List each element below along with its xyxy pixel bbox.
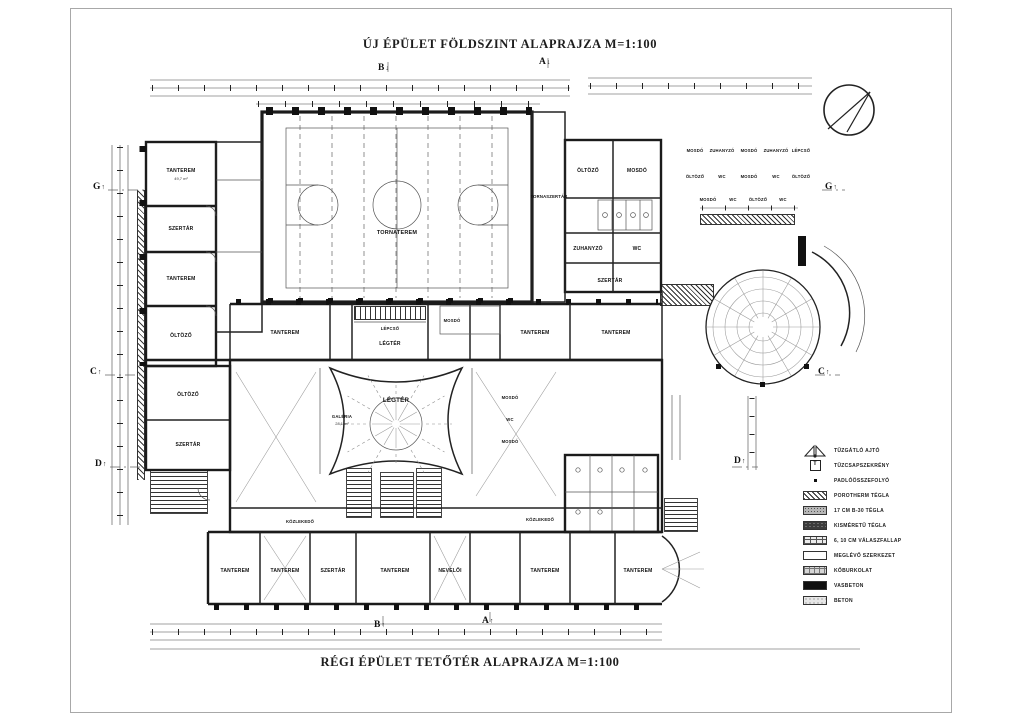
room-label: WC [633, 246, 642, 252]
room-area: 28,1 m² [335, 421, 349, 426]
room-label: TANTEREM [270, 330, 299, 336]
room-label: GALÉRIA [332, 414, 352, 419]
legend-item-stone: KŐBURKOLAT [802, 563, 952, 578]
room-label: TANTEREM [270, 568, 299, 574]
fire-hydrant-icon: T [810, 460, 821, 471]
section-marker-b-top: B↓ [378, 63, 389, 73]
east-block [532, 112, 661, 302]
section-marker-a-top: A↓ [539, 57, 550, 67]
section-marker-d-right: D↑ [734, 456, 745, 466]
room-label: WC [718, 174, 725, 179]
porotherm-swatch [803, 491, 827, 500]
room-label: LÉGTÉR [379, 339, 401, 347]
section-marker-c-left: C↑ [90, 367, 101, 377]
room-label: SZERTÁR [320, 567, 345, 574]
room-label: MOSDÓ [627, 166, 647, 174]
legend-item-b30: 17 CM B-30 TÉGLA [802, 503, 952, 518]
section-marker-g-left: G↑ [93, 182, 105, 192]
floor-drain-icon [814, 479, 817, 482]
room-label: ÖLTÖZŐ [177, 391, 199, 398]
west-wing [143, 142, 262, 470]
legend-item-partition: 6, 10 CM VÁLASZFALLAP [802, 533, 952, 548]
section-marker-b-bottom: B↑ [374, 620, 385, 630]
room-label: MOSDÓ [687, 148, 704, 153]
room-label: WC [779, 197, 786, 202]
round-terrace [706, 236, 865, 387]
room-label: SZERTÁR [168, 225, 193, 232]
legend-item-concrete: BETON [802, 593, 952, 608]
room-label: LÉGTÉR [383, 396, 410, 404]
legend-item-fire-door: TŰZGÁTLÓ AJTÓ [802, 443, 952, 458]
dimension-strip-left [112, 145, 128, 525]
room-label: MOSDÓ [700, 197, 717, 202]
room-label: TANTEREM [520, 330, 549, 336]
dimension-strip-bottom [150, 624, 860, 649]
room-label: LÉPCSŐ [381, 326, 400, 331]
room-label: ÖLTÖZŐ [577, 167, 599, 174]
room-area: 49,7 m² [174, 176, 188, 181]
drawing-sheet: ÚJ ÉPÜLET FÖLDSZINT ALAPRAJZA M=1:100 RÉ… [0, 0, 1024, 724]
room-label: TANTEREM [380, 568, 409, 574]
section-marker-a-bottom: A↑ [482, 616, 493, 626]
partition-swatch [803, 536, 827, 545]
legend-item-small-brick: KISMÉRETŰ TÉGLA [802, 518, 952, 533]
legend: TŰZGÁTLÓ AJTÓ T TŰZCSAPSZEKRÉNY PADLÓÖSS… [802, 443, 952, 608]
small-brick-swatch [803, 521, 827, 530]
room-label: NEVELŐI [438, 567, 462, 574]
legend-item-rc: VASBETON [802, 578, 952, 593]
atrium [230, 360, 662, 532]
floor-plan-drawing: .thin{stroke:#555;stroke-width:.7;fill:n… [0, 0, 1024, 724]
room-label: KÖZLEKEDŐ [286, 519, 315, 524]
room-label: MOSDÓ [502, 395, 519, 400]
room-label: LÉPCSŐ [792, 148, 811, 153]
room-label: ZUHANYZÓ [764, 148, 789, 153]
room-label: ZUHANYZÓ [710, 148, 735, 153]
room-label: ÖLTÖZŐ [749, 197, 768, 202]
basketball-court-markings [286, 128, 508, 288]
room-label: TANTEREM [530, 568, 559, 574]
room-label: ÖLTÖZŐ [792, 174, 811, 179]
room-label: MOSDÓ [444, 318, 461, 323]
room-label: TANTEREM [623, 568, 652, 574]
room-label: ÖLTÖZŐ [686, 174, 705, 179]
room-label: MOSDÓ [502, 439, 519, 444]
concrete-swatch [803, 596, 827, 605]
dimension-strip-top-right [588, 78, 812, 208]
room-label: MOSDÓ [741, 174, 758, 179]
legend-item-porotherm: POROTHERM TÉGLA [802, 488, 952, 503]
legend-item-floor-drain: PADLÓÖSSZEFOLYÓ [802, 473, 952, 488]
room-label: TANTEREM [601, 330, 630, 336]
fire-door-icon [802, 444, 828, 458]
gym-hall [262, 111, 532, 302]
room-label: WC [729, 197, 736, 202]
b30-swatch [803, 506, 827, 515]
reinforced-concrete-swatch [803, 581, 827, 590]
room-label: TANTEREM [166, 276, 195, 282]
south-east-block [565, 455, 658, 532]
stone-paving-swatch [803, 566, 827, 575]
room-label: ÖLTÖZŐ [170, 332, 192, 339]
room-label: KÖZLEKEDŐ [526, 517, 555, 522]
section-marker-d-left: D↑ [95, 459, 106, 469]
room-label: TORNASZERTÁR [531, 194, 568, 199]
room-label: TORNATEREM [377, 230, 418, 236]
room-label: TANTEREM [166, 168, 195, 174]
legend-item-fire-hydrant: T TŰZCSAPSZEKRÉNY [802, 458, 952, 473]
room-label: SZERTÁR [597, 277, 622, 284]
legend-item-existing: MEGLÉVŐ SZERKEZET [802, 548, 952, 563]
room-label: SZERTÁR [175, 441, 200, 448]
room-label: WC [772, 174, 779, 179]
room-label: ZUHANYZÓ [573, 244, 602, 252]
dimension-strip-top [150, 80, 570, 104]
section-marker-c-right: C↑ [818, 367, 829, 377]
south-wing [198, 488, 704, 607]
room-label: TANTEREM [220, 568, 249, 574]
room-label: MOSDÓ [741, 148, 758, 153]
room-label: WC [506, 417, 513, 422]
section-marker-g-right: G↑ [825, 182, 837, 192]
existing-structure-swatch [803, 551, 827, 560]
